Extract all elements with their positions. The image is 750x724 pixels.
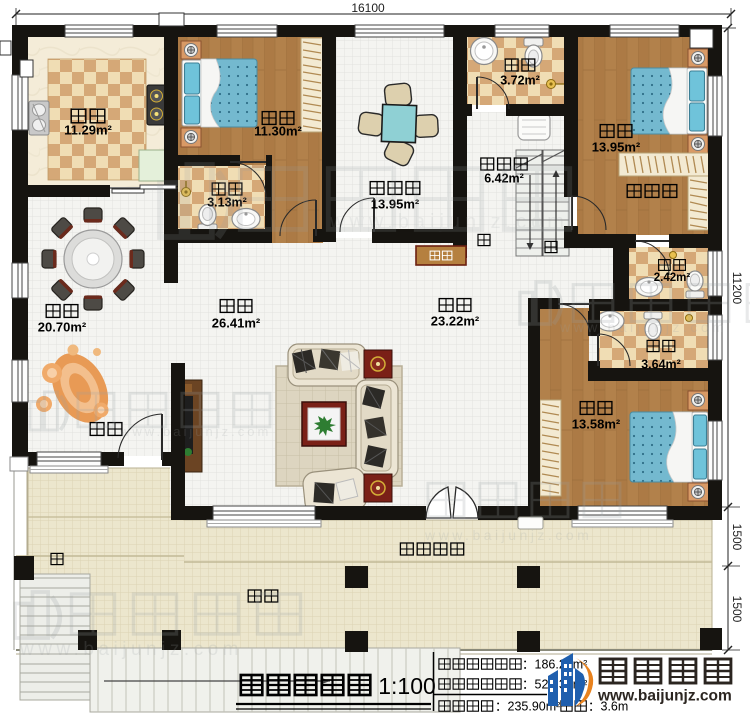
svg-text:13.95m²: 13.95m² bbox=[592, 140, 641, 155]
svg-text:www.baijunjz.com: www.baijunjz.com bbox=[597, 687, 732, 704]
svg-text:1500: 1500 bbox=[730, 596, 744, 623]
svg-text:3.64m²: 3.64m² bbox=[641, 357, 681, 371]
svg-text:：186.25m²: ：186.25m² bbox=[522, 657, 587, 671]
svg-text:www.baijunjz.com: www.baijunjz.com bbox=[119, 424, 271, 439]
svg-text:1500: 1500 bbox=[730, 524, 744, 551]
svg-text:1:100: 1:100 bbox=[378, 673, 436, 699]
svg-text:23.22m²: 23.22m² bbox=[431, 314, 480, 329]
svg-text:3.72m²: 3.72m² bbox=[500, 73, 540, 87]
svg-text:20.70m²: 20.70m² bbox=[38, 320, 87, 335]
svg-text:26.41m²: 26.41m² bbox=[212, 316, 261, 331]
svg-text:www.baijunjz.com: www.baijunjz.com bbox=[424, 527, 592, 543]
svg-text:11200: 11200 bbox=[730, 272, 744, 305]
svg-text:11.30m²: 11.30m² bbox=[254, 124, 302, 139]
svg-text:www.baijunjz.com: www.baijunjz.com bbox=[559, 319, 727, 335]
svg-text:2.42m²: 2.42m² bbox=[654, 272, 691, 284]
svg-text:16100: 16100 bbox=[351, 1, 385, 15]
svg-text:www.baijunjz.com: www.baijunjz.com bbox=[19, 639, 243, 660]
svg-text:www.baijunjz.com: www.baijunjz.com bbox=[329, 211, 569, 233]
svg-text:13.58m²: 13.58m² bbox=[572, 417, 621, 432]
svg-text:11.29m²: 11.29m² bbox=[64, 123, 112, 138]
